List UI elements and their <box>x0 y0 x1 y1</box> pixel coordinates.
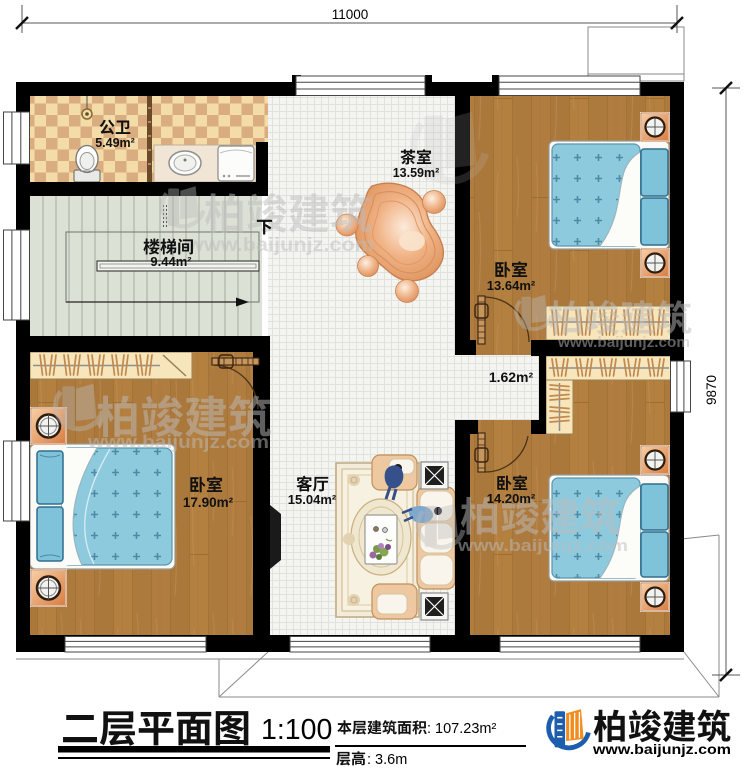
svg-text:1.62m²: 1.62m² <box>489 369 534 385</box>
svg-text:www.baijunjz.com: www.baijunjz.com <box>87 432 269 452</box>
svg-text:11000: 11000 <box>332 7 369 22</box>
svg-text:15.04m²: 15.04m² <box>288 492 337 507</box>
svg-text:9870: 9870 <box>704 375 719 405</box>
svg-text:www.baijunjz.com: www.baijunjz.com <box>457 536 628 555</box>
svg-text:14.20m²: 14.20m² <box>487 491 536 506</box>
svg-text:13.59m²: 13.59m² <box>393 166 440 180</box>
svg-text:9.44m²: 9.44m² <box>150 254 192 269</box>
svg-text:: 107.23m²: : 107.23m² <box>427 721 496 737</box>
svg-text:5.49m²: 5.49m² <box>95 136 135 150</box>
svg-text:: 3.6m: : 3.6m <box>367 752 407 768</box>
svg-text:1:100: 1:100 <box>261 714 332 746</box>
svg-text:17.90m²: 17.90m² <box>183 495 234 510</box>
svg-text:www.baijunjz.com: www.baijunjz.com <box>592 741 731 757</box>
svg-text:13.64m²: 13.64m² <box>487 278 536 293</box>
svg-text:www.baijunjz.com: www.baijunjz.com <box>186 235 374 256</box>
svg-text:www.baijunjz.com: www.baijunjz.com <box>557 334 690 351</box>
